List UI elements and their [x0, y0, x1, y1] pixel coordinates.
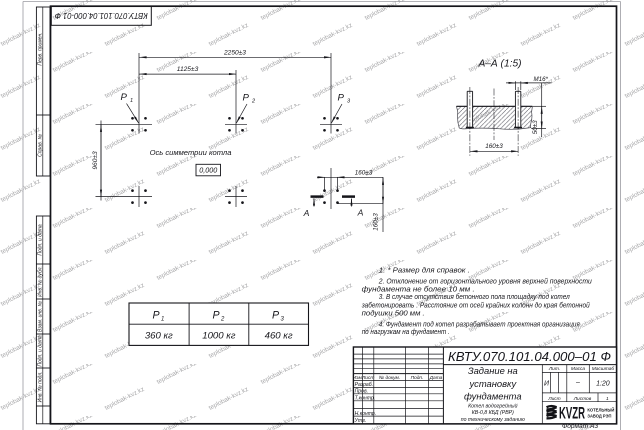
- svg-text:1: 1: [130, 98, 133, 104]
- svg-text:1125±3: 1125±3: [177, 66, 199, 73]
- svg-text:Подп.: Подп.: [411, 375, 424, 381]
- svg-text:А: А: [357, 207, 364, 217]
- svg-text:М16*: М16*: [534, 76, 549, 83]
- svg-text:KVZR: KVZR: [559, 403, 585, 422]
- svg-text:Р: Р: [213, 310, 220, 322]
- svg-text:Лит.: Лит.: [548, 366, 560, 372]
- svg-text:2250±3: 2250±3: [223, 50, 246, 57]
- svg-text:подушки 500 мм .: подушки 500 мм .: [362, 310, 425, 318]
- svg-text:Пров.: Пров.: [355, 388, 368, 394]
- svg-text:1:20: 1:20: [596, 381, 610, 388]
- svg-text:Подп. и дата: Подп. и дата: [37, 224, 43, 256]
- svg-text:Масштаб: Масштаб: [592, 366, 615, 372]
- svg-text:по нагрузкам на фундамент .: по нагрузкам на фундамент .: [362, 328, 450, 336]
- svg-text:КВТУ.070.101.04.000-01 Ф: КВТУ.070.101.04.000-01 Ф: [54, 11, 147, 21]
- svg-text:1: 1: [606, 396, 609, 402]
- svg-text:Р: Р: [272, 310, 279, 322]
- svg-text:4. Фундамент под котел разраба: 4. Фундамент под котел разрабатывает про…: [379, 320, 580, 328]
- svg-text:Котел водогрейный: Котел водогрейный: [468, 403, 517, 410]
- svg-text:ЗАВОД РЭП: ЗАВОД РЭП: [587, 414, 611, 419]
- svg-text:Р: Р: [243, 93, 250, 104]
- svg-text:Справ. №: Справ. №: [37, 134, 43, 157]
- svg-text:–: –: [575, 379, 580, 386]
- svg-text:Лист: Лист: [361, 375, 374, 381]
- svg-text:2. Отклонение от горизонтально: 2. Отклонение от горизонтального уровня …: [378, 278, 592, 286]
- svg-text:Ось симметрии котла: Ось симметрии котла: [150, 148, 232, 157]
- svg-text:Перв. примен.: Перв. примен.: [37, 32, 43, 65]
- svg-text:Дата: Дата: [429, 375, 443, 381]
- svg-text:460 кг: 460 кг: [265, 331, 293, 342]
- svg-text:160±3: 160±3: [485, 143, 503, 150]
- svg-text:50±3: 50±3: [532, 120, 539, 134]
- svg-text:А: А: [303, 208, 310, 218]
- svg-text:Р: Р: [153, 310, 160, 322]
- svg-text:забетонировать . Расстояние от: забетонировать . Расстояние от осей край…: [361, 301, 590, 309]
- svg-text:Задание на: Задание на: [468, 365, 518, 376]
- svg-text:Масса: Масса: [571, 366, 586, 372]
- svg-text:0,000: 0,000: [199, 166, 217, 175]
- svg-text:Р: Р: [338, 93, 345, 104]
- svg-text:А–А (1:5): А–А (1:5): [477, 59, 521, 70]
- svg-text:по техническому заданию: по техническому заданию: [461, 417, 525, 423]
- svg-text:Разраб.: Разраб.: [355, 382, 373, 388]
- svg-text:360 кг: 360 кг: [145, 331, 173, 342]
- svg-text:1. * Размер для справок .: 1. * Размер для справок .: [379, 267, 470, 275]
- svg-text:Инв. № дубл.: Инв. № дубл.: [37, 266, 43, 297]
- svg-text:№ докум.: № докум.: [379, 375, 400, 381]
- svg-text:фундамента не более 10 мм .: фундамента не более 10 мм .: [362, 285, 475, 293]
- svg-text:160±3: 160±3: [355, 170, 373, 177]
- svg-text:Р: Р: [121, 92, 128, 103]
- svg-text:1000 кг: 1000 кг: [202, 331, 236, 342]
- svg-text:Лист: Лист: [547, 396, 560, 402]
- svg-text:Утв.: Утв.: [355, 418, 367, 424]
- svg-text:Формат А3: Формат А3: [562, 423, 598, 430]
- svg-text:Н.контр.: Н.контр.: [355, 411, 377, 417]
- svg-text:Листов: Листов: [573, 396, 592, 402]
- svg-text:Т.контр.: Т.контр.: [355, 395, 376, 401]
- svg-text:3. В случае отсутствия бетонно: 3. В случае отсутствия бетонного пола пл…: [379, 293, 570, 301]
- svg-text:960±3: 960±3: [92, 151, 99, 170]
- svg-text:1: 1: [161, 317, 164, 323]
- svg-text:КОТЕЛЬНЫЙ: КОТЕЛЬНЫЙ: [587, 405, 614, 412]
- svg-text:160±3: 160±3: [373, 213, 380, 231]
- svg-text:фундамента: фундамента: [464, 390, 522, 401]
- svg-text:Подп. и дата: Подп. и дата: [37, 335, 43, 367]
- svg-text:Взам. инв. №: Взам. инв. №: [37, 300, 43, 332]
- svg-text:Инв. № подл.: Инв. № подл.: [37, 371, 43, 402]
- svg-text:2: 2: [220, 317, 225, 323]
- svg-text:КВТУ.070.101.04.000–01 Ф: КВТУ.070.101.04.000–01 Ф: [448, 349, 611, 364]
- svg-text:КВ-0,8 КБД (РВР): КВ-0,8 КБД (РВР): [472, 410, 514, 416]
- svg-text:установку: установку: [468, 378, 517, 389]
